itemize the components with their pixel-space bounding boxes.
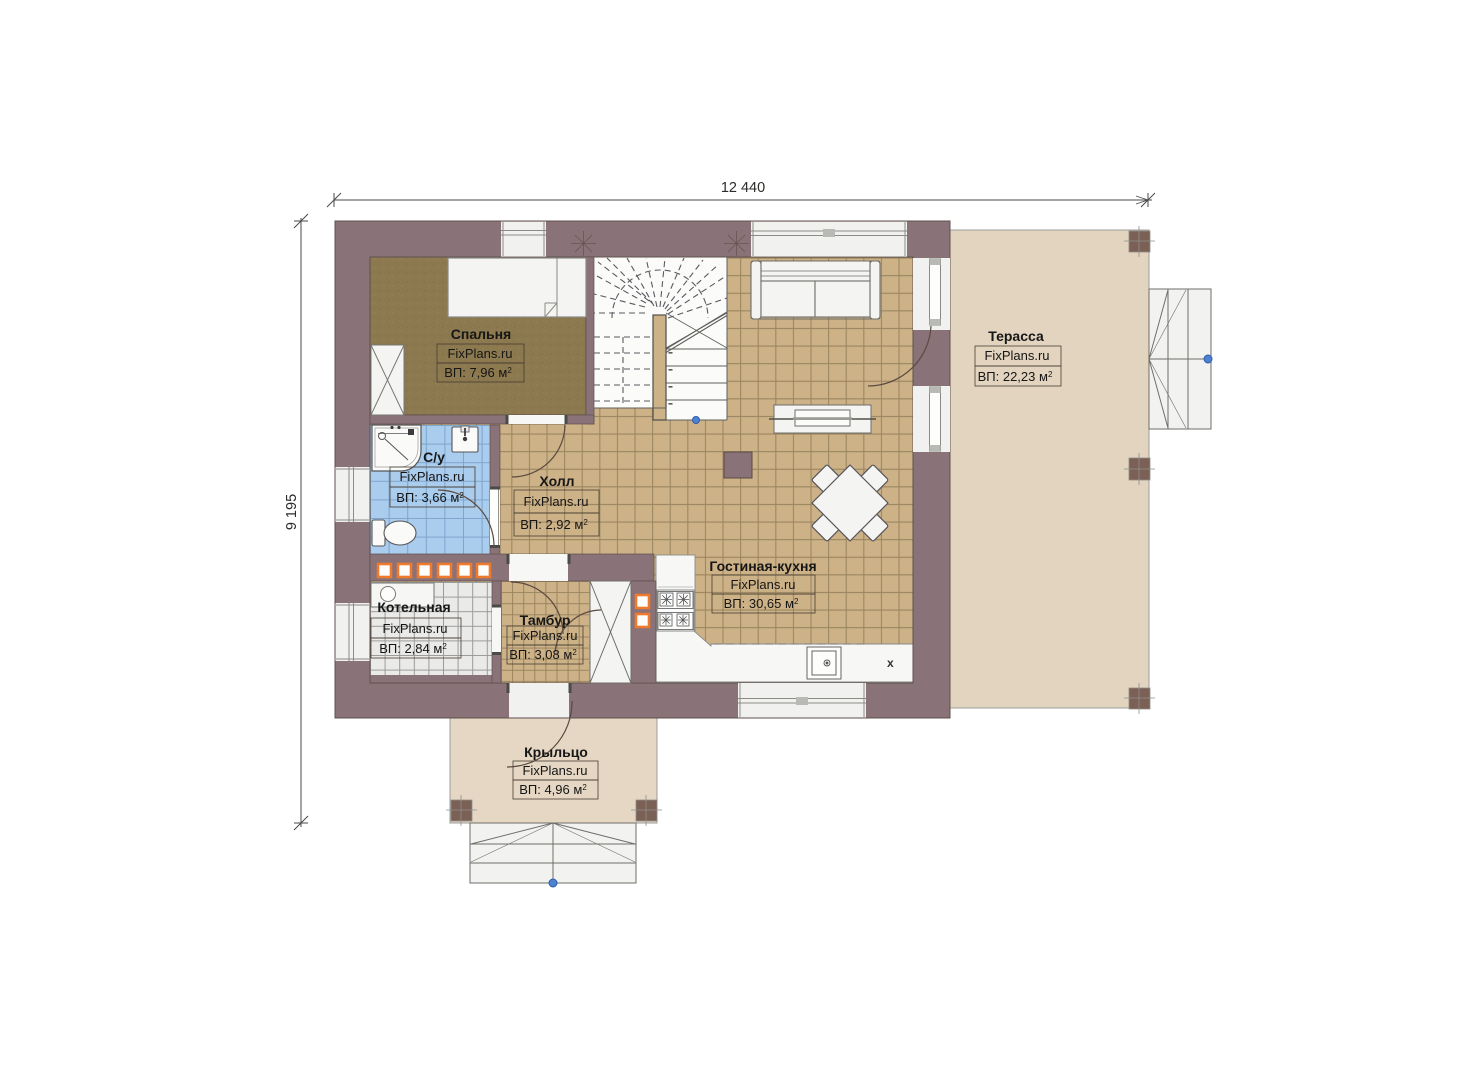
svg-text:Гостиная-кухня: Гостиная-кухня bbox=[709, 558, 816, 574]
svg-text:ВП: 3,08 м2: ВП: 3,08 м2 bbox=[509, 647, 577, 662]
svg-text:Спальня: Спальня bbox=[451, 326, 511, 342]
svg-text:FixPlans.ru: FixPlans.ru bbox=[522, 763, 587, 778]
svg-text:С/у: С/у bbox=[423, 449, 445, 465]
svg-text:Котельная: Котельная bbox=[377, 599, 450, 615]
svg-text:FixPlans.ru: FixPlans.ru bbox=[512, 628, 577, 643]
svg-text:12 440: 12 440 bbox=[721, 180, 765, 196]
svg-text:FixPlans.ru: FixPlans.ru bbox=[523, 494, 588, 509]
svg-text:ВП: 7,96 м2: ВП: 7,96 м2 bbox=[444, 365, 512, 380]
svg-text:ВП: 4,96 м2: ВП: 4,96 м2 bbox=[519, 782, 587, 797]
svg-text:ВП: 22,23 м2: ВП: 22,23 м2 bbox=[978, 369, 1053, 384]
svg-text:ВП: 2,84 м2: ВП: 2,84 м2 bbox=[379, 641, 447, 656]
svg-text:FixPlans.ru: FixPlans.ru bbox=[382, 621, 447, 636]
svg-text:ВП: 3,66 м2: ВП: 3,66 м2 bbox=[396, 490, 464, 505]
svg-text:FixPlans.ru: FixPlans.ru bbox=[399, 469, 464, 484]
svg-text:FixPlans.ru: FixPlans.ru bbox=[984, 348, 1049, 363]
svg-text:9 195: 9 195 bbox=[284, 494, 300, 530]
svg-text:Холл: Холл bbox=[539, 473, 574, 489]
svg-text:ВП: 2,92 м2: ВП: 2,92 м2 bbox=[520, 517, 588, 532]
svg-text:FixPlans.ru: FixPlans.ru bbox=[447, 346, 512, 361]
svg-text:Терасса: Терасса bbox=[988, 328, 1044, 344]
svg-text:Тамбур: Тамбур bbox=[520, 612, 571, 628]
svg-text:Крыльцо: Крыльцо bbox=[524, 744, 588, 760]
svg-text:FixPlans.ru: FixPlans.ru bbox=[730, 577, 795, 592]
svg-text:x: x bbox=[887, 656, 894, 670]
svg-text:ВП: 30,65 м2: ВП: 30,65 м2 bbox=[724, 596, 799, 611]
